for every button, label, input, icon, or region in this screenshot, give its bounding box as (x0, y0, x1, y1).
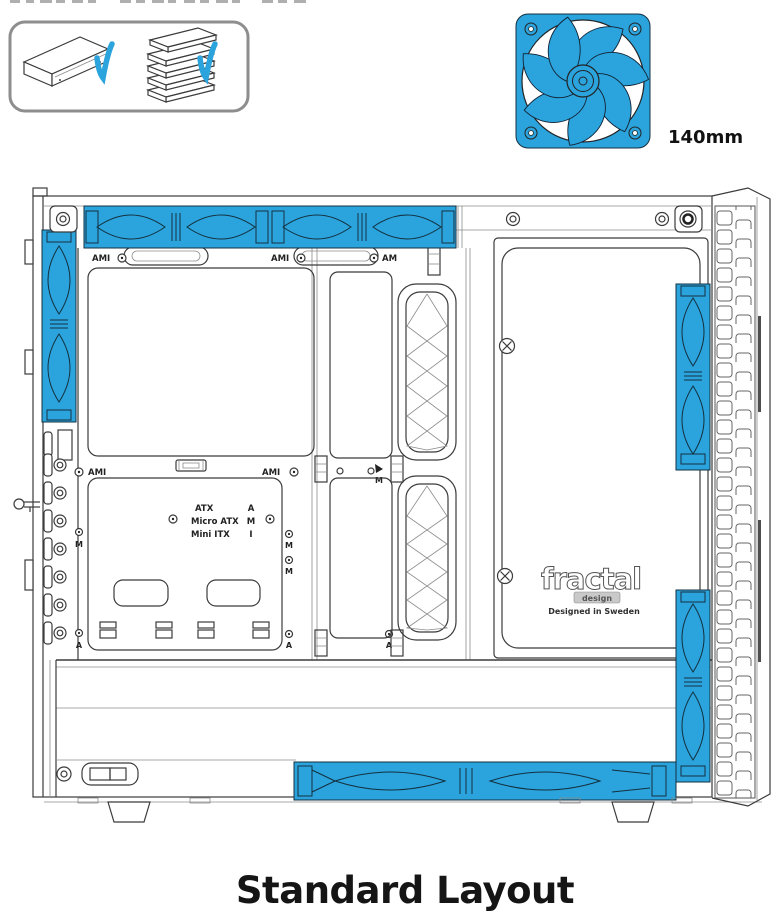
mobo-type-matx: Micro ATX (191, 517, 239, 527)
lock-key-icon (14, 499, 40, 512)
ssd-mount-clips (100, 622, 269, 638)
top-fan-strip (84, 206, 456, 248)
brand-tagline: Designed in Sweden (548, 607, 640, 616)
case-foot-right (612, 802, 654, 822)
motherboard-tray: ATX Micro ATX Mini ITX A M I AMI AMI AM … (75, 241, 397, 650)
vented-bracket-lower (398, 476, 456, 640)
standoff-marker: AMI (88, 468, 106, 478)
bottom-fan-strip (294, 762, 676, 800)
mobo-key-m: M (247, 517, 255, 527)
mobo-key-a: A (248, 504, 255, 514)
fan-size-label: 140mm (668, 127, 743, 148)
standoff-marker: A (286, 641, 293, 650)
standoff-marker: M (285, 541, 293, 550)
compatibility-box (10, 22, 248, 111)
bracket-clip (391, 456, 403, 482)
standoff-marker: A (76, 641, 83, 650)
standoff-marker: A (386, 641, 393, 650)
case-foot-left (108, 802, 150, 822)
cable-cover-panels (315, 245, 456, 656)
mobo-key-i: I (249, 530, 252, 540)
front-bezel (712, 188, 770, 806)
cable-grommet (114, 580, 168, 606)
standoff-marker: AMI (271, 254, 289, 264)
cpu-cutout (88, 268, 314, 456)
case-diagram: ATX Micro ATX Mini ITX A M I AMI AMI AM … (14, 188, 770, 822)
case-outline (14, 188, 762, 802)
fractal-logo: fractal design Designed in Sweden (541, 562, 641, 616)
vent-grille (715, 206, 755, 798)
mobo-type-list: ATX Micro ATX Mini ITX A M I (169, 504, 274, 540)
mobo-type-itx: Mini ITX (191, 530, 230, 540)
cable-grommet (207, 580, 260, 606)
standoff-marker: AMI (262, 468, 280, 478)
caption-title: Standard Layout (236, 869, 574, 912)
standoff-marker: AM (382, 254, 397, 264)
front-fan-strip-upper (676, 284, 710, 470)
fractal-logo-text: fractal (541, 562, 641, 596)
standoff-marker: M (375, 476, 383, 485)
manual-page: 140mm (0, 0, 784, 920)
standoff-marker: AMI (92, 254, 110, 264)
top-cropped-text (10, 0, 306, 3)
screw-icon (500, 339, 515, 354)
standoff-marker: M (75, 540, 83, 549)
bracket-clip (428, 245, 440, 275)
rear-fan-strip (42, 230, 76, 422)
fractal-logo-sub: design (582, 594, 612, 603)
page-canvas: 140mm (0, 0, 784, 920)
interior-seams (78, 206, 470, 660)
standoff-marker: M (285, 567, 293, 576)
expansion-slot-screws (44, 430, 72, 644)
mobo-type-atx: ATX (195, 504, 214, 514)
standoff-markers: AMI AMI AM AMI AMI M M A M (75, 254, 397, 650)
bezel-handle-mark (758, 520, 761, 662)
vented-bracket-upper (398, 284, 456, 460)
cable-tie-bracket (176, 460, 206, 471)
drive-tray-latch (57, 763, 138, 785)
fan-140mm-icon (516, 14, 650, 148)
pointer-icon (375, 464, 383, 473)
bezel-handle-mark (758, 316, 761, 412)
screw-icon (498, 569, 513, 584)
front-fan-strip-lower (676, 590, 710, 782)
